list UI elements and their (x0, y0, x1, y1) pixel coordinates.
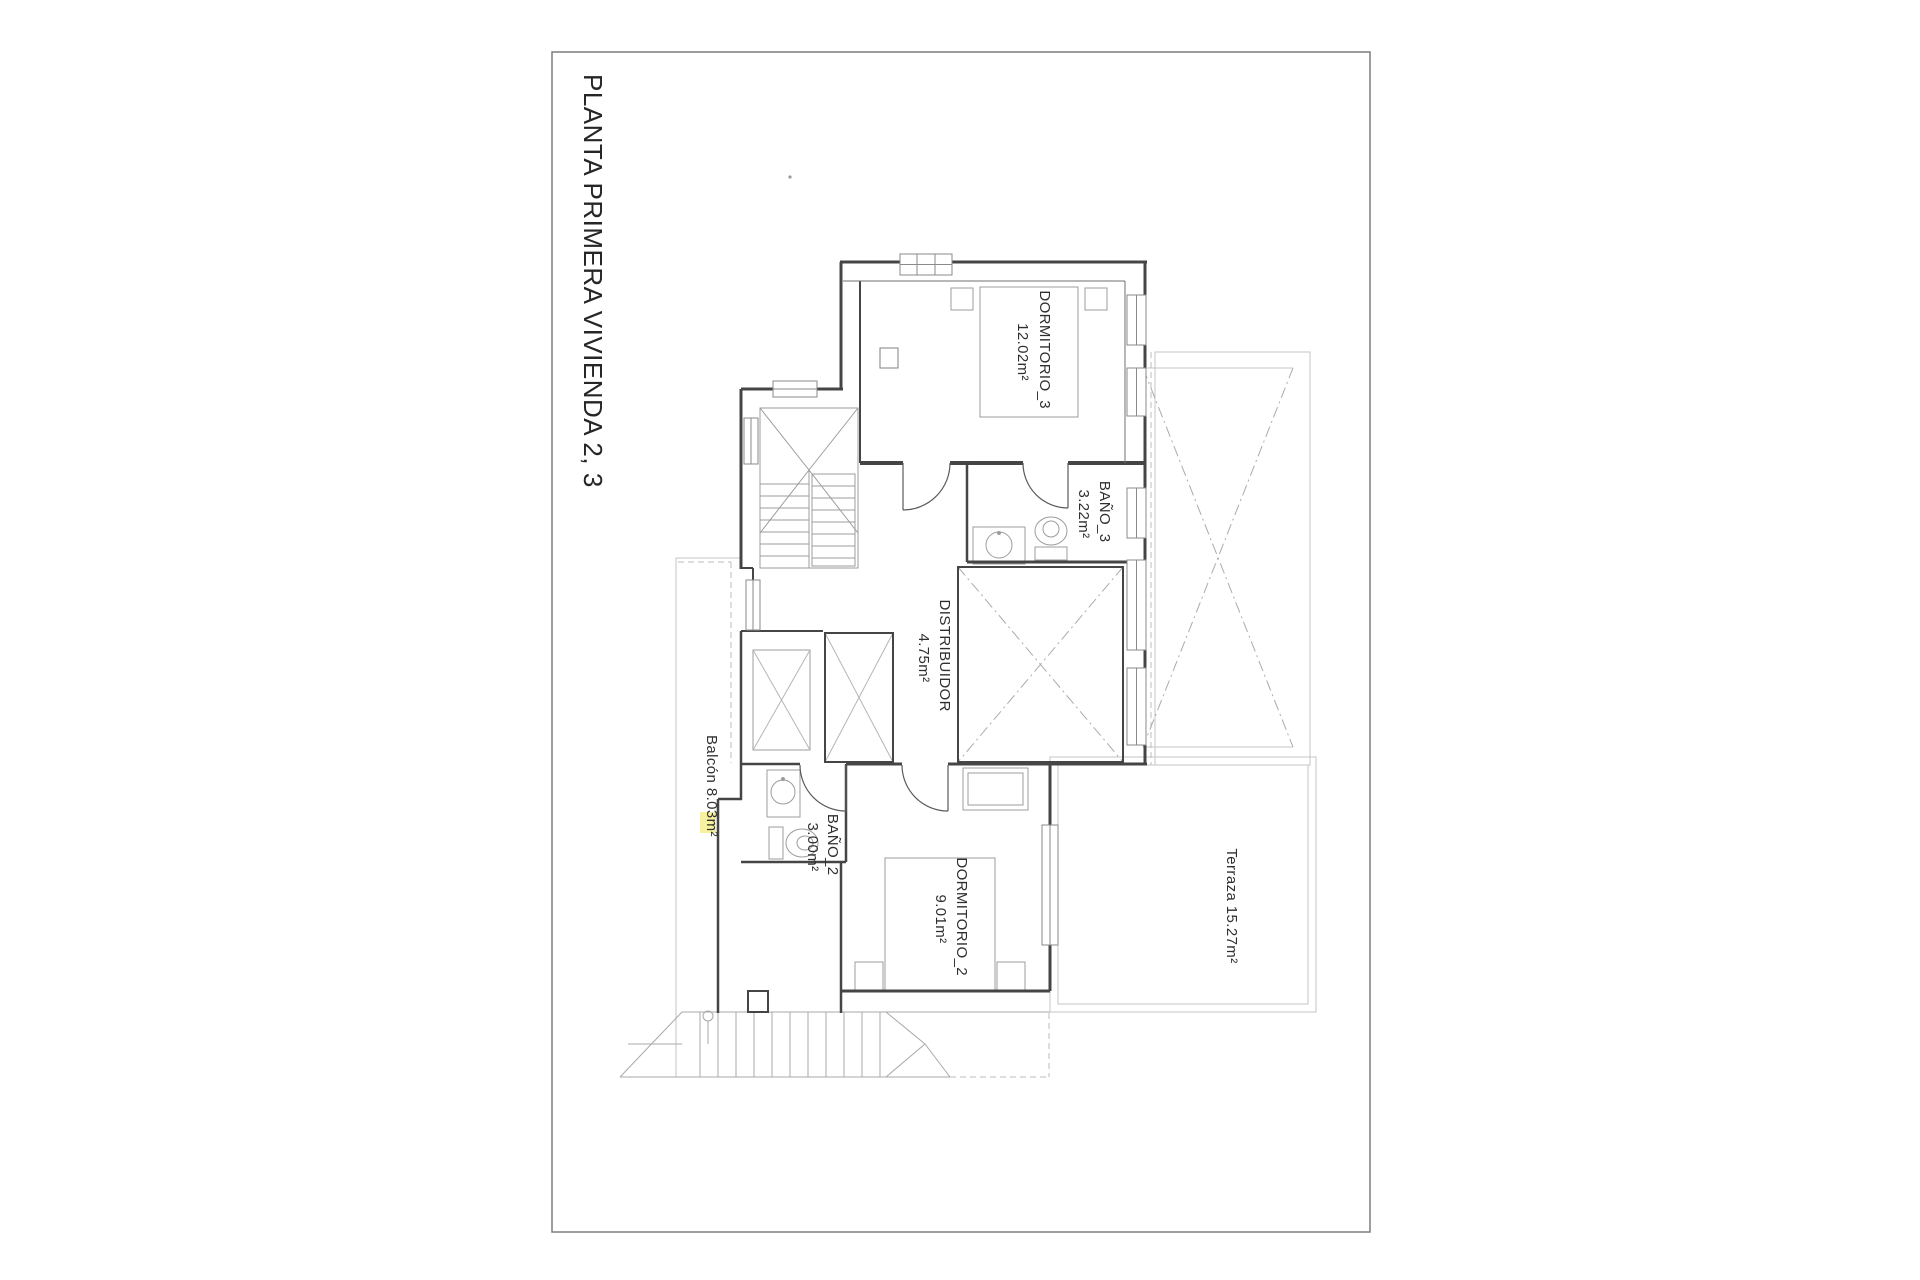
paper-border (552, 52, 1370, 1232)
room-name: DORMITORIO_3 (1036, 290, 1053, 409)
window-icon (773, 381, 817, 397)
drawing-sheet: PLANTA PRIMERA VIVIENDA 2, 3 (0, 0, 1920, 1280)
room-area: 3.00m² (804, 822, 821, 871)
stray-dot (788, 175, 791, 178)
label-terraza: Terraza 15.27m² (1223, 848, 1240, 963)
window-icon (1127, 668, 1146, 745)
room-area: 3.22m² (1075, 489, 1092, 538)
room-area: 4.75m² (915, 633, 932, 682)
label-balcon: Balcón 8.03m² (703, 735, 720, 837)
window-icon (1042, 825, 1058, 945)
room-name: DISTRIBUIDOR (936, 600, 953, 712)
window-icon (746, 580, 760, 630)
room-name: BAÑO_2 (824, 814, 841, 876)
floor-plan-svg: PLANTA PRIMERA VIVIENDA 2, 3 (0, 0, 1920, 1280)
window-icon (744, 418, 758, 464)
room-area: 12.02m² (1014, 323, 1031, 381)
room-name: DORMITORIO_2 (953, 857, 970, 976)
room-area: 9.01m² (932, 894, 949, 943)
window-icon (1127, 368, 1146, 416)
room-name: BAÑO_3 (1096, 481, 1113, 543)
window-icon (900, 254, 952, 275)
plan-title: PLANTA PRIMERA VIVIENDA 2, 3 (578, 74, 608, 488)
window-icon (1127, 488, 1146, 538)
window-icon (1127, 560, 1146, 650)
window-icon (1127, 295, 1146, 345)
